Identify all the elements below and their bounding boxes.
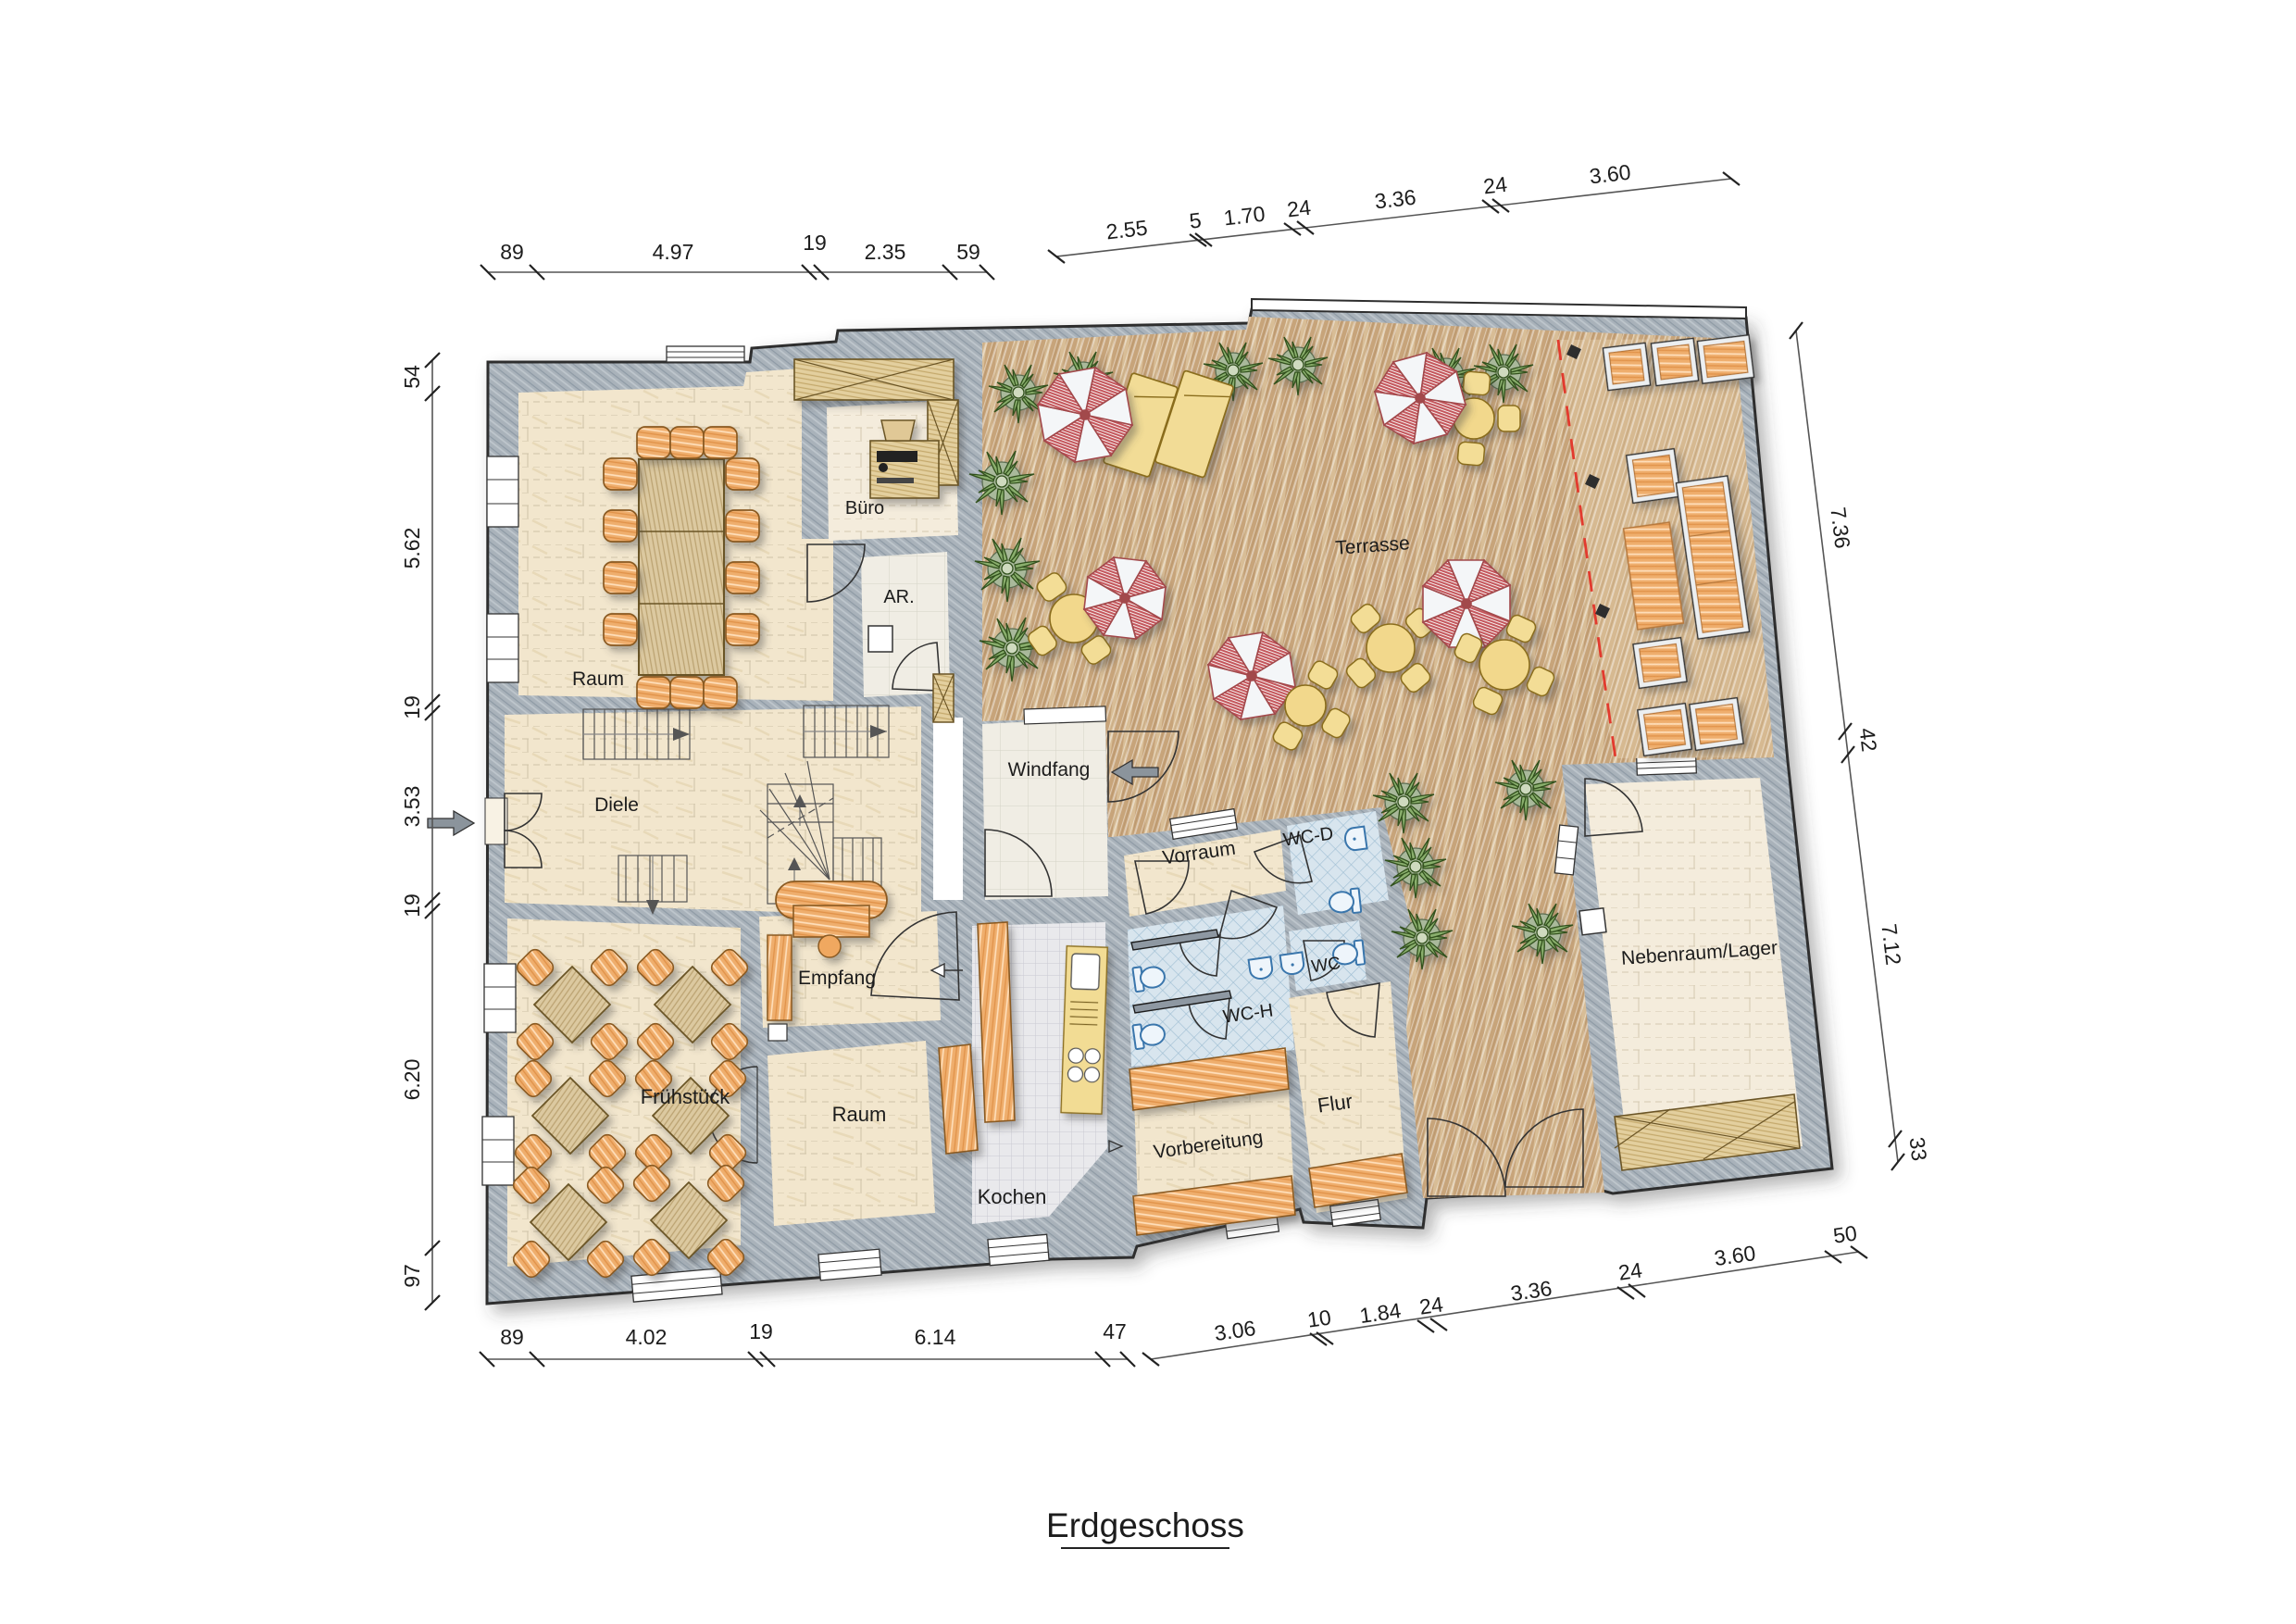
- svg-text:50: 50: [1831, 1220, 1858, 1247]
- svg-text:Diele: Diele: [594, 794, 639, 816]
- svg-text:19: 19: [400, 695, 424, 719]
- svg-text:4.02: 4.02: [626, 1325, 668, 1349]
- svg-text:3.53: 3.53: [400, 786, 424, 828]
- svg-text:Flur: Flur: [1316, 1090, 1354, 1118]
- svg-text:24: 24: [1417, 1292, 1444, 1318]
- svg-text:89: 89: [500, 1325, 524, 1349]
- svg-text:24: 24: [1286, 195, 1313, 222]
- svg-text:97: 97: [400, 1264, 424, 1288]
- svg-text:Raum: Raum: [832, 1103, 887, 1126]
- svg-text:6.20: 6.20: [400, 1059, 424, 1101]
- svg-text:Raum: Raum: [572, 668, 624, 690]
- svg-text:2.35: 2.35: [865, 240, 906, 264]
- svg-text:1.70: 1.70: [1222, 202, 1266, 231]
- svg-text:Frühstück: Frühstück: [641, 1085, 731, 1108]
- svg-text:Erdgeschoss: Erdgeschoss: [1046, 1506, 1244, 1544]
- svg-text:Kochen: Kochen: [978, 1185, 1047, 1208]
- svg-text:Büro: Büro: [845, 498, 884, 518]
- svg-text:19: 19: [803, 231, 827, 255]
- svg-text:3.60: 3.60: [1588, 160, 1631, 189]
- svg-text:5.62: 5.62: [400, 528, 424, 569]
- svg-text:7.36: 7.36: [1826, 506, 1854, 550]
- svg-text:2.55: 2.55: [1104, 216, 1148, 244]
- svg-text:42: 42: [1854, 727, 1881, 754]
- svg-text:6.14: 6.14: [915, 1325, 956, 1349]
- svg-text:10: 10: [1305, 1305, 1332, 1331]
- svg-text:Empfang: Empfang: [798, 968, 876, 989]
- svg-text:AR.: AR.: [883, 587, 914, 607]
- svg-text:47: 47: [1103, 1319, 1127, 1343]
- svg-text:19: 19: [400, 893, 424, 918]
- svg-text:24: 24: [1616, 1257, 1643, 1284]
- svg-text:33: 33: [1904, 1136, 1931, 1163]
- svg-text:4.97: 4.97: [653, 240, 694, 264]
- svg-text:89: 89: [500, 240, 524, 264]
- svg-text:19: 19: [749, 1319, 773, 1343]
- svg-text:Windfang: Windfang: [1008, 759, 1091, 781]
- svg-text:59: 59: [956, 240, 980, 264]
- svg-text:24: 24: [1482, 172, 1509, 199]
- svg-text:WC: WC: [1310, 954, 1341, 977]
- svg-text:54: 54: [400, 365, 424, 389]
- svg-text:7.12: 7.12: [1877, 922, 1905, 967]
- svg-text:3.36: 3.36: [1373, 185, 1416, 214]
